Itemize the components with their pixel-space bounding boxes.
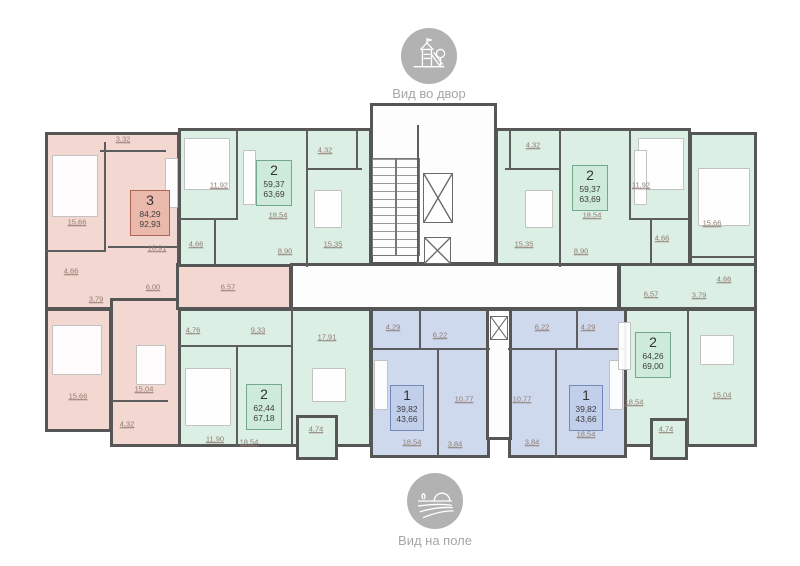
apartment-2-bottom-left-balcony[interactable] — [296, 415, 338, 460]
apartment-area-total: 92,93 — [131, 220, 169, 229]
dimension-label: 8,90 — [574, 247, 589, 255]
staircase-divider — [395, 158, 397, 256]
wall — [370, 348, 490, 350]
table-symbol — [525, 190, 553, 228]
dimension-label: 3,79 — [692, 291, 707, 299]
wall — [508, 348, 627, 350]
wall — [505, 168, 561, 170]
apartment-badge-1-left[interactable]: 1 39,82 43,66 — [390, 385, 424, 431]
dimension-label: 18,54 — [583, 211, 602, 219]
playground-icon — [401, 28, 457, 84]
apartment-rooms: 2 — [257, 163, 291, 178]
dimension-label: 4,32 — [120, 420, 135, 428]
wall — [100, 150, 166, 152]
dimension-label: 6,57 — [221, 283, 236, 291]
wall — [214, 218, 216, 265]
wall — [509, 128, 511, 168]
courtyard-view-label: Вид во двор — [392, 86, 466, 101]
dimension-label: 4,66 — [717, 275, 732, 283]
bed-symbol — [52, 155, 98, 217]
corridor — [290, 263, 620, 310]
dimension-label: 6,57 — [644, 290, 659, 298]
dimension-label: 4,29 — [581, 323, 596, 331]
wall — [104, 142, 106, 250]
wall — [306, 128, 308, 267]
dimension-label: 11,92 — [210, 181, 228, 189]
dimension-label: 17,91 — [318, 333, 337, 341]
dimension-label: 15,35 — [324, 240, 343, 248]
dimension-label: 15,66 — [68, 218, 87, 226]
apartment-badge-2-bottom-left[interactable]: 2 62,44 67,18 — [246, 384, 282, 430]
apartment-rooms: 2 — [247, 387, 281, 402]
wall — [108, 246, 178, 248]
apartment-rooms: 3 — [131, 193, 169, 208]
dimension-label: 9,33 — [251, 326, 266, 334]
dimension-label: 4,32 — [318, 146, 333, 154]
dimension-label: 15,66 — [69, 392, 88, 400]
apartment-rooms: 1 — [570, 388, 602, 403]
wall — [45, 250, 106, 252]
dimension-label: 15,04 — [713, 391, 732, 399]
wall — [437, 348, 439, 458]
vent-shaft-icon — [490, 316, 508, 340]
dimension-label: 6,22 — [535, 323, 550, 331]
dimension-label: 4,76 — [186, 326, 201, 334]
wall — [650, 218, 652, 265]
apartment-badge-2-right[interactable]: 2 64,26 69,00 — [635, 332, 671, 378]
table-symbol — [314, 190, 342, 228]
table-symbol — [700, 335, 734, 365]
elevator-icon — [423, 173, 453, 223]
apartment-area-total: 63,69 — [573, 195, 607, 204]
sofa-symbol — [243, 150, 256, 205]
wall — [112, 400, 168, 402]
dimension-label: 8,90 — [278, 247, 293, 255]
apartment-area-total: 69,00 — [636, 362, 670, 371]
dimension-label: 6,00 — [146, 283, 161, 291]
apartment-area-total: 67,18 — [247, 414, 281, 423]
wall — [306, 168, 362, 170]
dimension-label: 4,29 — [386, 323, 401, 331]
wall — [576, 308, 578, 350]
apartment-area-total: 43,66 — [570, 415, 602, 424]
dimension-label: 16,91 — [148, 244, 167, 252]
dimension-label: 15,35 — [515, 240, 534, 248]
wall — [419, 308, 421, 350]
dimension-label: 10,77 — [513, 395, 532, 403]
dimension-label: 4,32 — [526, 141, 541, 149]
dimension-label: 15,04 — [135, 385, 154, 393]
apartment-area-total: 43,66 — [391, 415, 423, 424]
apartment-rooms: 1 — [391, 388, 423, 403]
dimension-label: 18,54 — [625, 398, 644, 406]
field-icon — [407, 473, 463, 529]
wall — [178, 345, 292, 347]
sofa-symbol — [374, 360, 388, 410]
dimension-label: 4,66 — [189, 240, 204, 248]
dimension-label: 3,84 — [525, 438, 540, 446]
wall — [629, 218, 689, 220]
apartment-2-right-region-hall[interactable] — [618, 263, 757, 310]
wall — [417, 125, 419, 265]
dimension-label: 4,66 — [64, 267, 79, 275]
sofa-symbol — [634, 150, 647, 205]
wall — [178, 218, 236, 220]
dimension-label: 6,22 — [433, 331, 448, 339]
dimension-label: 3,79 — [89, 295, 104, 303]
dimension-label: 18,54 — [577, 430, 596, 438]
table-symbol — [136, 345, 166, 385]
dimension-label: 18,54 — [240, 438, 259, 446]
apartment-badge-2-top-left[interactable]: 2 59,37 63,69 — [256, 160, 292, 206]
wall — [559, 128, 561, 267]
bed-symbol — [52, 325, 102, 375]
apartment-rooms: 2 — [636, 335, 670, 350]
dimension-label: 15,66 — [703, 219, 722, 227]
dimension-label: 18,54 — [269, 211, 288, 219]
wall — [687, 310, 689, 447]
wall — [236, 345, 238, 447]
bed-symbol — [185, 368, 231, 426]
dimension-label: 4,74 — [659, 425, 674, 433]
floor-plan-page: Вид во двор — [0, 0, 800, 566]
wall — [555, 348, 557, 458]
apartment-badge-2-top-right[interactable]: 2 59,37 63,69 — [572, 165, 608, 211]
field-view-label: Вид на поле — [398, 533, 472, 548]
wall — [236, 128, 238, 220]
apartment-badge-3-left[interactable]: 3 84,29 92,93 — [130, 190, 170, 236]
wall — [629, 128, 631, 220]
apartment-area-total: 63,69 — [257, 190, 291, 199]
dimension-label: 18,54 — [403, 438, 422, 446]
dimension-label: 11,90 — [206, 435, 224, 443]
dimension-label: 4,74 — [309, 425, 324, 433]
dimension-label: 10,77 — [455, 395, 474, 403]
elevator-small-icon — [424, 237, 451, 264]
wall — [356, 128, 358, 168]
dimension-label: 11,92 — [632, 181, 650, 189]
wall — [689, 256, 757, 258]
dimension-label: 3,84 — [448, 440, 463, 448]
sofa-symbol — [618, 322, 631, 370]
apartment-rooms: 2 — [573, 168, 607, 183]
apartment-badge-1-right[interactable]: 1 39,82 43,66 — [569, 385, 603, 431]
dimension-label: 3,32 — [116, 135, 131, 143]
wall — [291, 308, 293, 447]
dimension-label: 4,66 — [655, 234, 670, 242]
table-symbol — [312, 368, 346, 402]
